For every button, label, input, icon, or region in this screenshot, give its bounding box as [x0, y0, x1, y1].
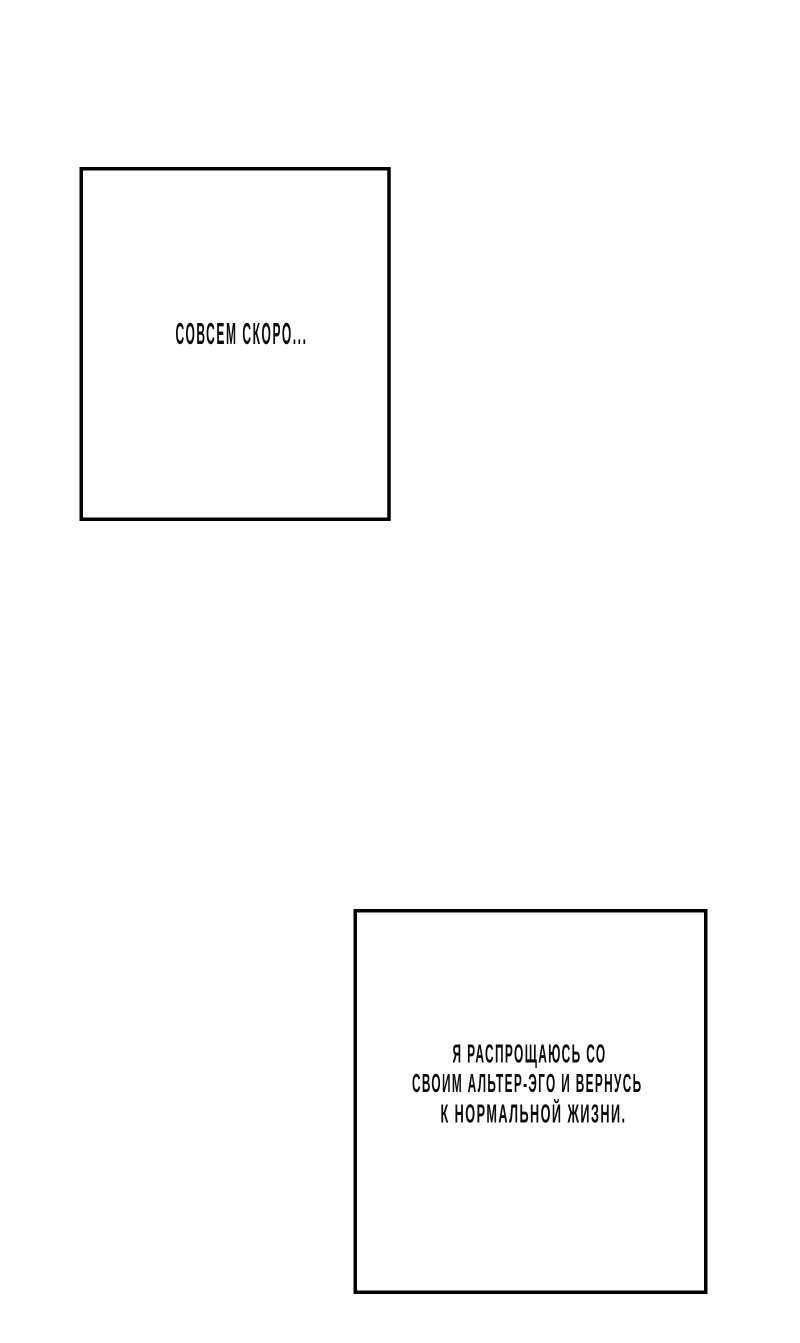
svg-text:СОВСЕМ СКОРО...: СОВСЕМ СКОРО... — [176, 317, 308, 351]
svg-text:К НОРМАЛЬНОЙ ЖИЗНИ.: К НОРМАЛЬНОЙ ЖИЗНИ. — [441, 1098, 627, 1128]
svg-text:Я РАСПРОЩАЮСЬ СО: Я РАСПРОЩАЮСЬ СО — [453, 1039, 607, 1069]
svg-text:СВОИМ АЛЬТЕР-ЭГО И ВЕРНУСЬ: СВОИМ АЛЬТЕР-ЭГО И ВЕРНУСЬ — [412, 1068, 643, 1098]
